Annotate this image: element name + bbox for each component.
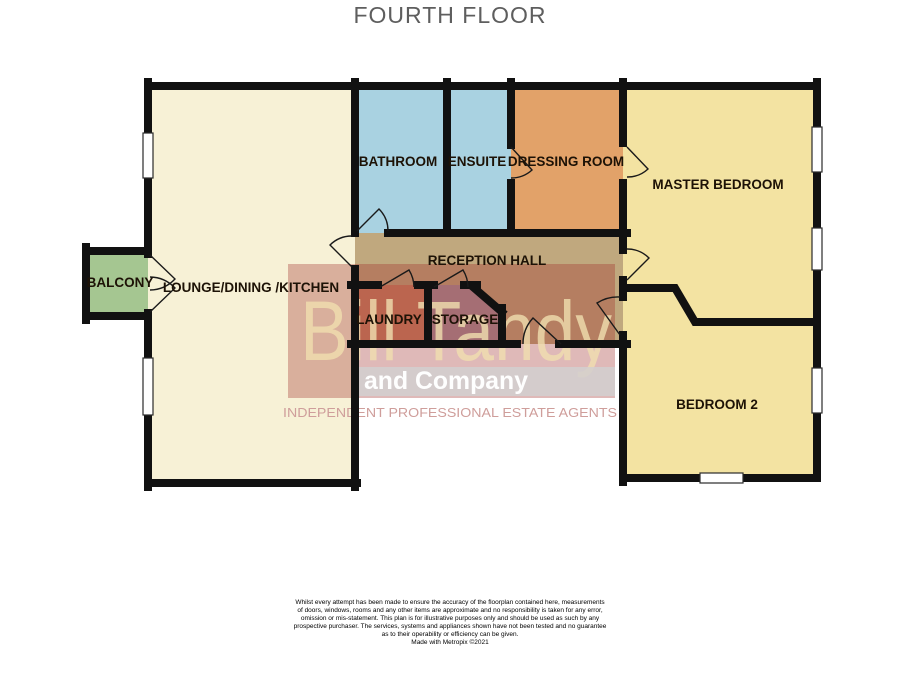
floorplan-page: FOURTH FLOOR Bill Tandy and Company INDE…	[0, 0, 900, 676]
label-hall: RECEPTION HALL	[428, 253, 547, 268]
window	[143, 358, 153, 415]
disclaimer-line: prospective purchaser. The services, sys…	[0, 623, 900, 631]
floorplan-svg: Bill Tandy and Company INDEPENDENT PROFE…	[0, 0, 900, 676]
disclaimer-line: of doors, windows, rooms and any other i…	[0, 607, 900, 615]
label-dressing: DRESSING ROOM	[508, 154, 624, 169]
window	[143, 133, 153, 178]
label-balcony: BALCONY	[87, 275, 154, 290]
watermark-tagline: INDEPENDENT PROFESSIONAL ESTATE AGENTS	[283, 405, 617, 420]
credit-line: Made with Metropix ©2021	[0, 639, 900, 647]
window	[700, 473, 743, 483]
watermark-subname: and Company	[364, 367, 528, 395]
label-laundry: LAUNDRY	[356, 312, 422, 327]
disclaimer-line: Whilst every attempt has been made to en…	[0, 599, 900, 607]
label-master: MASTER BEDROOM	[652, 177, 783, 192]
window	[812, 127, 822, 172]
label-bathroom: BATHROOM	[359, 154, 438, 169]
label-bedroom2: BEDROOM 2	[676, 397, 758, 412]
disclaimer-line: as to their operability or efficiency ca…	[0, 631, 900, 639]
disclaimer-line: omission or mis-statement. This plan is …	[0, 615, 900, 623]
window	[812, 368, 822, 413]
label-ensuite: ENSUITE	[448, 154, 507, 169]
window	[812, 228, 822, 270]
footer-disclaimer: Whilst every attempt has been made to en…	[0, 599, 900, 647]
label-lounge: LOUNGE/DINING /KITCHEN	[163, 280, 339, 295]
label-storage: STORAGE	[432, 312, 499, 327]
watermark-name: Bill Tandy	[300, 284, 612, 378]
